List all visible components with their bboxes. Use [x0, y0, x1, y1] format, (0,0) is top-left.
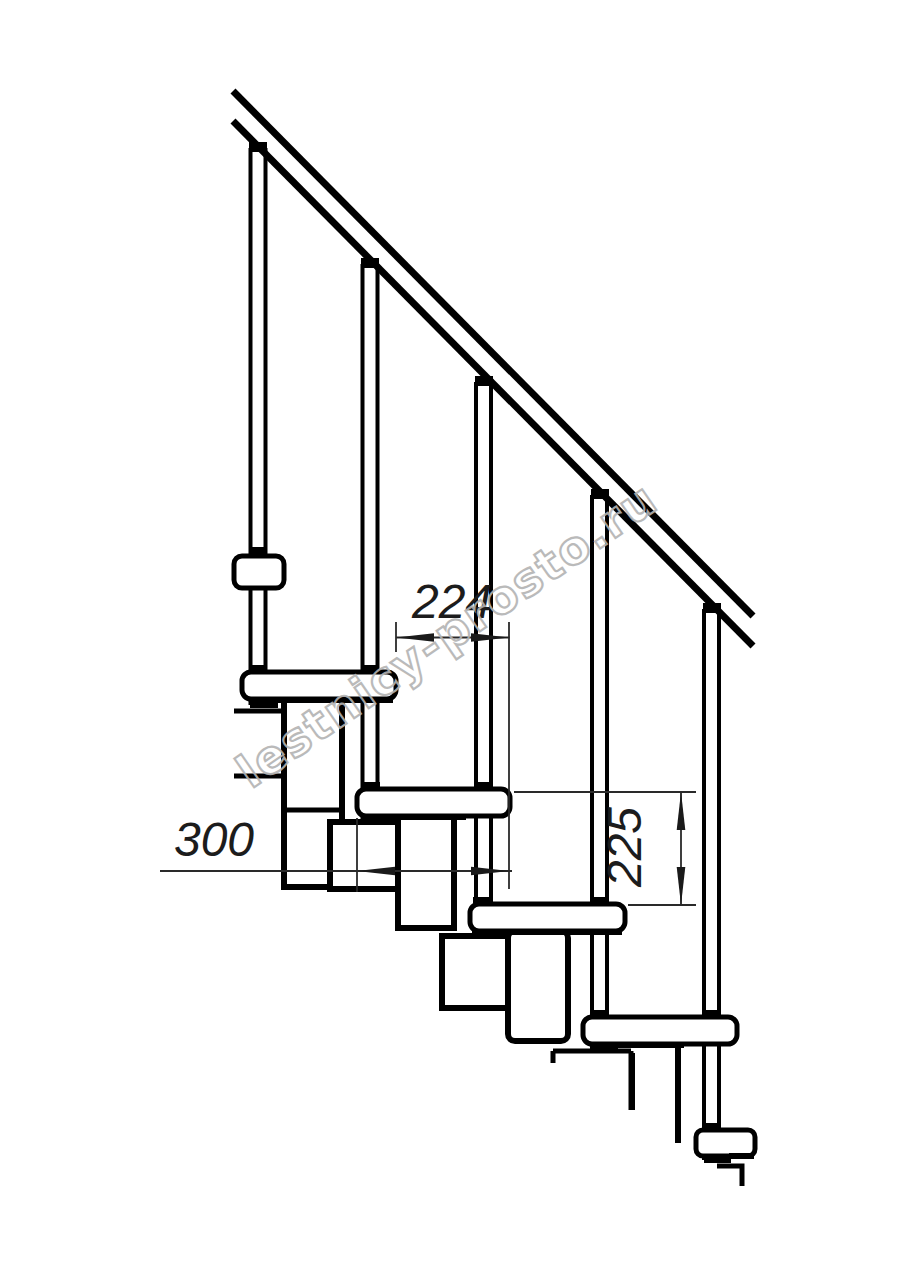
dimension-225-label: 225 [598, 807, 651, 888]
baluster-joint [249, 665, 267, 673]
stringer-box-2 [330, 822, 406, 889]
stringer-box-4 [553, 1051, 631, 1110]
stringer-column-4 [632, 1046, 678, 1143]
dimension-300-label: 300 [174, 813, 254, 866]
baluster-1 [251, 150, 266, 703]
baluster-fastener [250, 698, 278, 708]
stringer-column-2 [398, 812, 454, 928]
baluster-3 [476, 384, 491, 932]
tread-2 [357, 789, 510, 816]
baluster-joint [473, 897, 492, 905]
dim-arrow-up [677, 792, 686, 830]
cutoff-zigzag [717, 1166, 742, 1186]
handrail-bracket [234, 556, 284, 588]
baluster-fastener [591, 1043, 618, 1052]
tread-shadow [497, 929, 622, 935]
baluster-fastener [362, 815, 392, 825]
baluster-5 [704, 611, 719, 1158]
baluster-joint [702, 1010, 721, 1018]
tread-shadow [390, 814, 466, 820]
baluster-joint [249, 547, 267, 556]
tread-5 [696, 1130, 755, 1156]
baluster-4 [592, 497, 607, 1047]
baluster-2 [363, 266, 378, 820]
dim-arrow-down [677, 867, 686, 905]
tread-shadow [616, 1042, 684, 1048]
tread-shadow [729, 1153, 754, 1159]
baluster-fastener [472, 930, 499, 939]
staircase-drawing: 224 300 225 lestnicy-prosto.ru [0, 0, 914, 1280]
baluster-joint [702, 1123, 721, 1131]
baluster-joint [590, 897, 609, 905]
baluster-fastener [704, 1154, 731, 1163]
baluster-joint [590, 1010, 609, 1018]
tread-3 [470, 904, 625, 931]
baluster-joint [474, 782, 493, 790]
tread-4 [583, 1017, 737, 1044]
baluster-joint [361, 782, 380, 790]
stringer-column-3 [508, 931, 568, 1041]
